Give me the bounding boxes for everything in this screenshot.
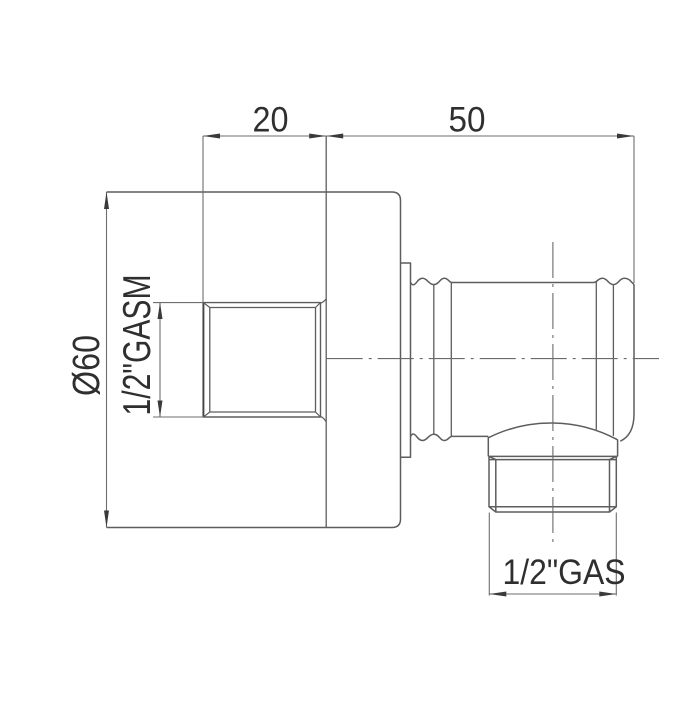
svg-text:1/2"GASM: 1/2"GASM <box>116 275 159 416</box>
svg-text:Ø60: Ø60 <box>66 335 108 396</box>
svg-text:20: 20 <box>253 101 289 140</box>
svg-text:50: 50 <box>449 101 486 140</box>
svg-text:1/2"GAS: 1/2"GAS <box>503 553 626 592</box>
